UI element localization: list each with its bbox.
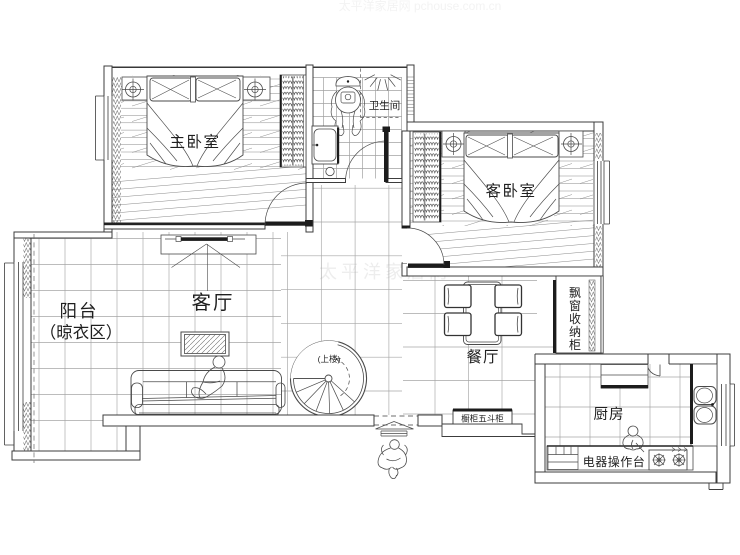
svg-text:电器操作台: 电器操作台 bbox=[583, 454, 646, 469]
svg-text:（晾衣区）: （晾衣区） bbox=[40, 323, 123, 342]
svg-text:太平洋家居网 pchouse.com.cn: 太平洋家居网 pchouse.com.cn bbox=[339, 0, 502, 13]
svg-text:收: 收 bbox=[569, 312, 581, 326]
svg-text:阳台: 阳台 bbox=[60, 301, 99, 321]
svg-text:厨房: 厨房 bbox=[594, 406, 625, 423]
svg-text:客厅: 客厅 bbox=[191, 292, 234, 314]
svg-text:柜: 柜 bbox=[569, 338, 581, 352]
svg-text:主卧室: 主卧室 bbox=[169, 133, 220, 151]
svg-text:(上楼): (上楼) bbox=[318, 354, 341, 364]
svg-text:飘: 飘 bbox=[569, 286, 581, 300]
svg-text:窗: 窗 bbox=[569, 299, 581, 313]
svg-text:客卧室: 客卧室 bbox=[485, 182, 536, 200]
svg-text:卫生间: 卫生间 bbox=[369, 99, 401, 112]
svg-text:纳: 纳 bbox=[569, 325, 581, 339]
svg-text:餐厅: 餐厅 bbox=[466, 348, 499, 366]
svg-text:橱柜五斗柜: 橱柜五斗柜 bbox=[461, 414, 504, 424]
